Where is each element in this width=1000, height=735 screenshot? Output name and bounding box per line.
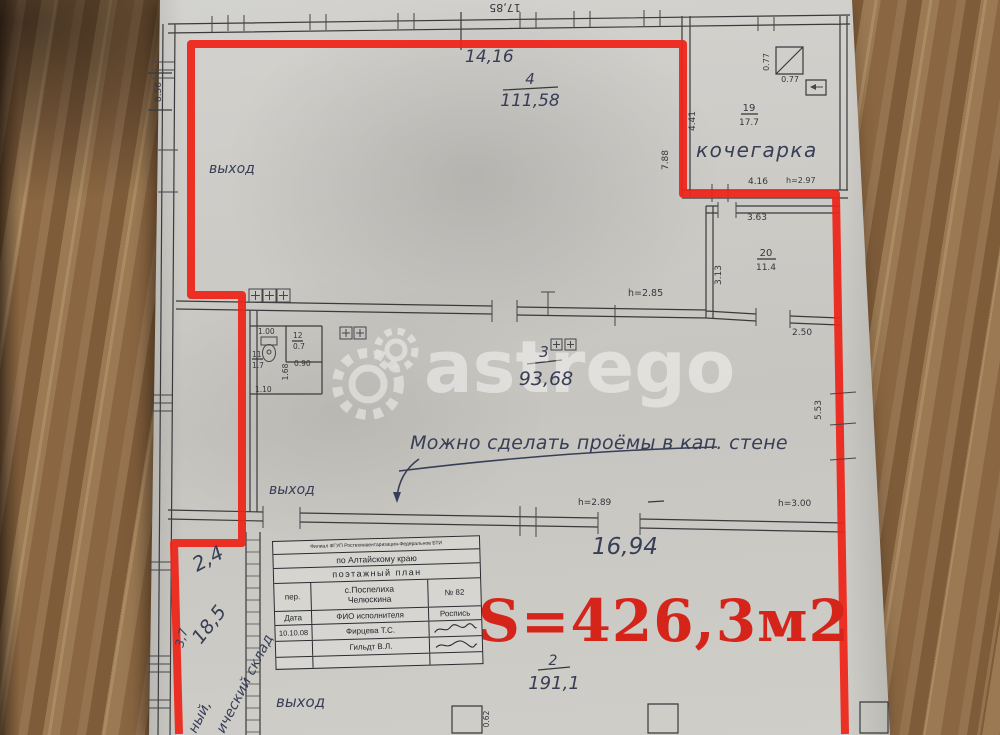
floor-plan-drawing: astrego 17,85 8.56 14,16 4 111,58 выход … xyxy=(0,0,1000,735)
stamp-signature-label: Роспись xyxy=(429,606,481,620)
room3-height-mark1: h=2.89 xyxy=(578,498,612,508)
dim-wc-side: 1.68 xyxy=(281,363,290,380)
dim-wc-top: 1.00 xyxy=(258,327,275,336)
room2-number: 2 xyxy=(549,653,558,669)
shed-text-fragment-1: ный, xyxy=(185,698,215,735)
dim-boiler-wall: 7.88 xyxy=(661,150,671,170)
handwritten-note: Можно сделать проёмы в кап. стене xyxy=(410,432,788,454)
stamp-address: с.Поспелиха Челюскина xyxy=(311,580,429,610)
watermark-text: astrego xyxy=(424,325,735,409)
room3-height-mark2: h=3.00 xyxy=(778,499,812,509)
stamp-signature-2 xyxy=(430,636,482,652)
toilet-icon xyxy=(261,337,277,362)
dim-room4-width: 14,16 xyxy=(465,47,514,67)
exit-label-bottom: выход xyxy=(276,693,325,711)
signature-squiggle-2 xyxy=(433,638,479,651)
shed-text-fragment-2: ический склад xyxy=(213,632,276,735)
room20-number: 20 xyxy=(760,248,773,259)
dim-column: 0.62 xyxy=(482,710,491,727)
dim-boiler-left: 4.41 xyxy=(688,111,698,131)
stamp-house-number: № 82 xyxy=(428,578,481,606)
bti-stamp-table: Филиал ФГУП Ростехинвентаризация-Федерал… xyxy=(272,535,484,670)
stamp-date-label: Дата xyxy=(275,611,312,625)
exit-label-mid: выход xyxy=(269,482,315,498)
room2-area: 191,1 xyxy=(528,673,580,694)
stamp-street-label: пер. xyxy=(274,583,312,611)
door-arrow-icon xyxy=(810,84,823,90)
dim-left-outer: 8.56 xyxy=(154,82,164,102)
stamp-signature-1 xyxy=(429,620,481,636)
dim-boiler-width: 4.16 xyxy=(748,177,768,187)
note-arrowhead xyxy=(393,492,401,503)
stamp-org-line: Филиал ФГУП Ростехинвентаризация-Федерал… xyxy=(310,540,442,550)
room20-area: 11.4 xyxy=(756,263,776,273)
stamp-empty-cell xyxy=(276,641,313,657)
dim-room20-left: 3.13 xyxy=(714,265,724,285)
photo-of-floor-plan: astrego 17,85 8.56 14,16 4 111,58 выход … xyxy=(0,0,1000,735)
room3-area: 93,68 xyxy=(519,368,573,390)
dim-chimney-side: 0.77 xyxy=(762,53,771,71)
dim-room3-right: 5.53 xyxy=(814,400,824,420)
boiler-number: 19 xyxy=(743,103,756,114)
boiler-room-name: кочегарка xyxy=(696,138,818,162)
dim-shed-2: 18,5 xyxy=(188,601,231,648)
wc-area: 1.7 xyxy=(252,361,264,370)
stamp-street: Челюскина xyxy=(348,594,392,605)
room4-number: 4 xyxy=(525,70,535,88)
room4-height-mark: h=2.85 xyxy=(628,288,663,299)
dim-top-outer: 17,85 xyxy=(489,1,521,14)
wc-number: 11 xyxy=(252,350,262,359)
room4-area: 111,58 xyxy=(500,91,560,111)
stamp-date: 10.10.08 xyxy=(275,625,312,641)
dim-room20-bottom: 2.50 xyxy=(792,328,812,338)
boiler-area: 17.7 xyxy=(739,118,759,128)
dim-room3-bottom: 16,94 xyxy=(592,534,658,560)
dim-room12-bottom: 0.90 xyxy=(294,359,311,368)
exit-label-top: выход xyxy=(209,161,255,177)
room12-area: 0.7 xyxy=(293,342,305,351)
total-area-label: S=426,3м2 xyxy=(478,587,850,655)
room3-number: 3 xyxy=(539,343,549,361)
dim-room20-top: 3.63 xyxy=(747,213,767,223)
dim-chimney-bottom: 0.77 xyxy=(781,75,799,84)
room12-number: 12 xyxy=(293,331,303,340)
watermark-gear-icon-large xyxy=(337,353,399,415)
signature-squiggle-1 xyxy=(432,622,478,635)
dim-wc-bottom: 1.10 xyxy=(255,385,272,394)
stair-hatch xyxy=(246,540,260,732)
boiler-height-mark: h=2.97 xyxy=(786,176,816,185)
